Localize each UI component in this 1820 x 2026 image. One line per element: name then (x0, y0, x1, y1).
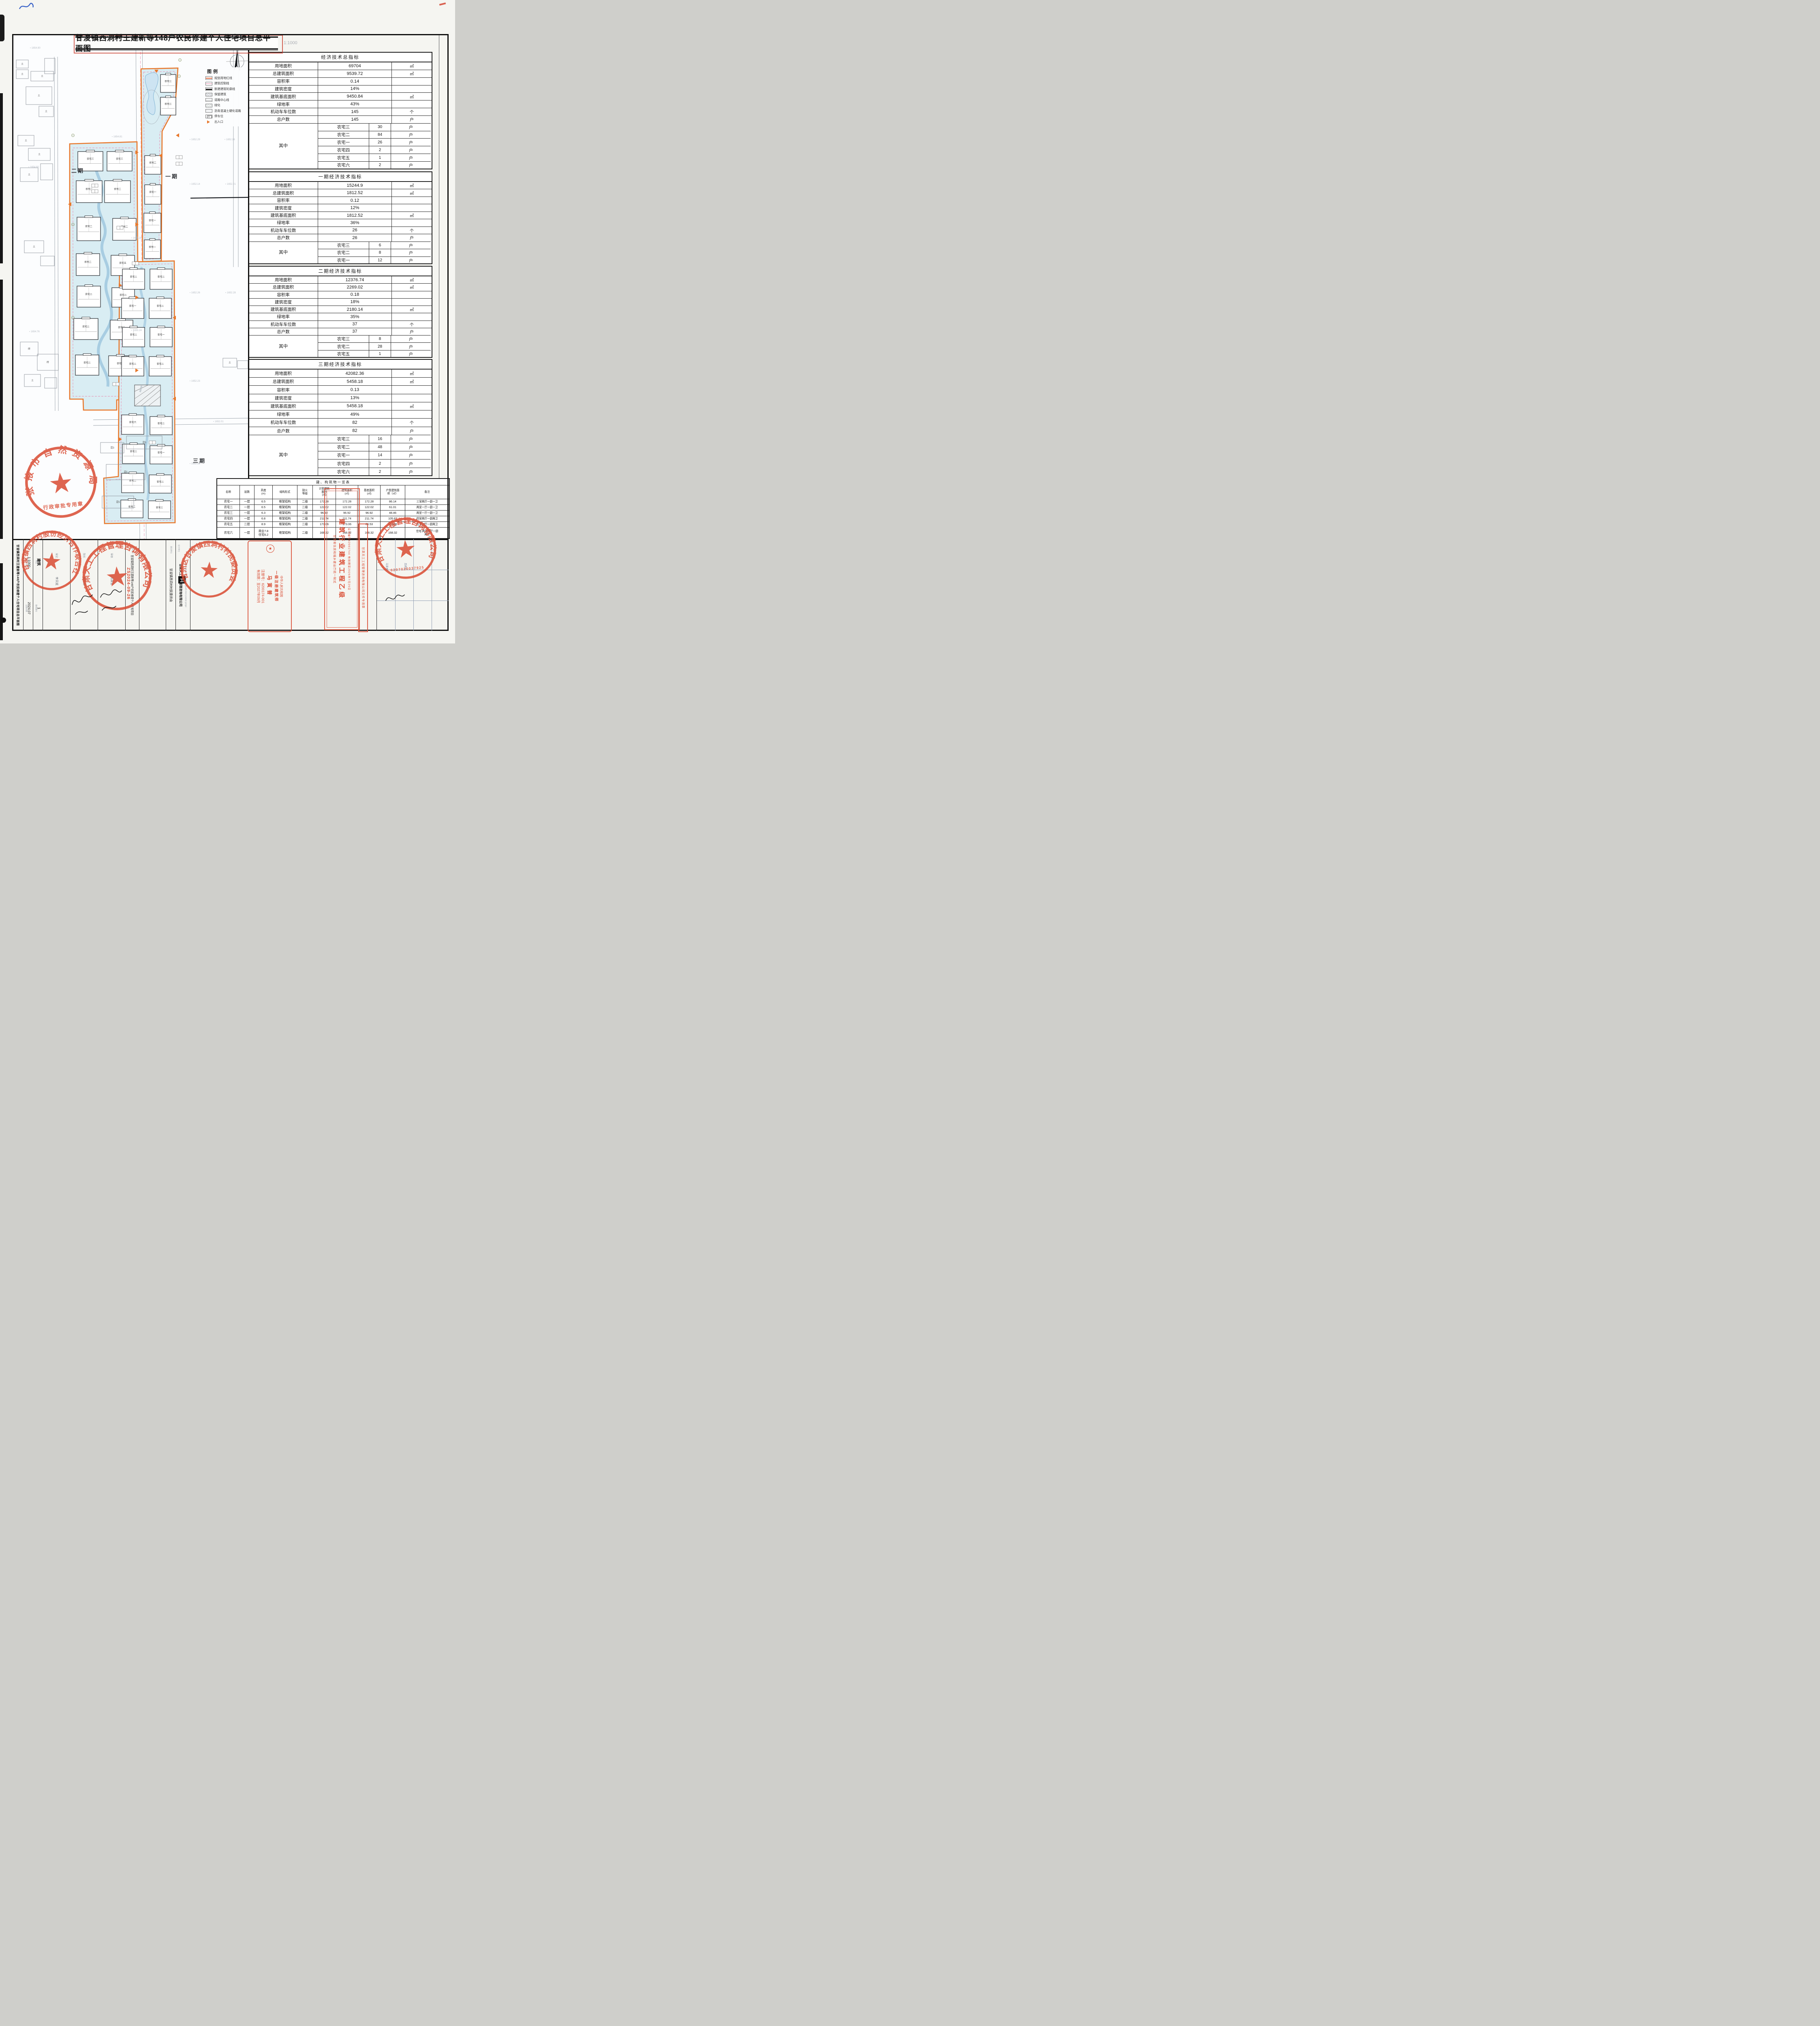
elevation-value: 1652.21 (227, 183, 236, 186)
table-cell: ㎡ (391, 402, 432, 410)
existing-building-label: 土 (21, 62, 24, 66)
table-cell: 农宅二 (318, 342, 369, 350)
existing-building-label: 土 (41, 75, 43, 78)
house-label: 农宅二 (130, 333, 137, 336)
house-label: 农宅二 (85, 293, 92, 296)
divider-vertical (248, 34, 249, 478)
table-cell: 172.28 (336, 499, 358, 504)
table-cell: 26 (369, 138, 391, 146)
table-header-cell: 层数 (240, 485, 254, 499)
table-row: 建筑基底面积9450.84㎡ (249, 92, 432, 100)
table-cell: 农宅三 (318, 123, 369, 131)
indicator-table: 经济技术总指标用地面积69704㎡总建筑面积9539.72㎡容积率0.14建筑密… (248, 52, 432, 169)
existing-building-label: 混5 (124, 470, 128, 474)
table-cell: 框架结构 (272, 510, 297, 516)
table-cell: 建筑密度 (249, 204, 318, 211)
house-label: 农宅一 (158, 451, 165, 454)
tb-role-2: 院长 (82, 553, 86, 558)
table-cell: 13% (318, 394, 391, 402)
house-block: 农宅一 (144, 212, 161, 233)
existing-building-label: 土 (38, 153, 41, 156)
table-row: 机动车车位数37个 (249, 321, 432, 328)
table-header-cell: 高度 (m) (254, 485, 272, 499)
elevation-value: 1654.81 (113, 136, 122, 138)
table-cell: 户 (391, 161, 431, 169)
table-row: 绿地率35% (249, 313, 432, 320)
elevation-value: 1652.16 (226, 139, 235, 141)
table-cell: 37 (318, 328, 391, 335)
tb-owner-cell: 建设单位 甘浚镇西洞村村民委员会 (166, 539, 176, 631)
table-cell: 户 (391, 249, 431, 256)
table-cell: 一层 (240, 499, 254, 504)
table-row: 容积率0.12 (249, 197, 432, 204)
tb-scale-value: 1:1000 (27, 557, 31, 567)
house-label: 农宅二 (157, 304, 164, 308)
table-cell: 框架结构 (272, 527, 297, 539)
table-cell: 6.3 (254, 510, 272, 516)
table-row: 总户数37户 (249, 328, 432, 335)
table-cell: 户 (391, 443, 431, 451)
dots-swatch (205, 109, 212, 113)
table-cell: 户 (391, 154, 431, 161)
house-label: 农宅六 (129, 421, 137, 424)
existing-building-label: 土 (25, 139, 27, 142)
pinkline-swatch (205, 82, 212, 85)
table-cell: 0.14 (318, 77, 391, 85)
elevation-value: 1652.29 (191, 139, 200, 141)
house-label: 农宅三 (165, 79, 172, 83)
table-cell: 26 (318, 227, 391, 234)
table-cell: 总户数 (249, 328, 318, 335)
elevation-value: 1654.76 (31, 331, 40, 333)
table-cell: 农宅一 (318, 256, 369, 264)
house-block: 农宅一 (144, 239, 160, 259)
scan-blob (0, 15, 4, 41)
legend-item-label: 规划用地红线 (214, 76, 232, 80)
house-label: 农宅二 (158, 275, 165, 278)
table-cell: 122.02 (358, 504, 380, 510)
table-cell (391, 100, 432, 108)
table-cell: 30 (369, 123, 391, 131)
table-cell: 机动车车位数 (249, 418, 318, 426)
table-cell: 户 (391, 123, 431, 131)
house-block: 农宅三 (107, 150, 132, 171)
scan-edge-bar (0, 563, 3, 640)
house-label: 农宅二 (130, 450, 137, 453)
table-cell: 个 (391, 418, 432, 426)
table-row: 农宅四一层6.8框架结构二级211.74211.74211.74105.87四室… (217, 516, 449, 521)
table-cell: 145 (318, 115, 391, 123)
table-cell: 框架结构 (272, 521, 297, 527)
parking-swatch (205, 115, 212, 118)
table-cell: 住宅:两室两厅一厨 两卫 (405, 527, 449, 539)
indicator-table-title: 二期经济技术指标 (249, 267, 432, 276)
table-cell: 6.5 (254, 499, 272, 504)
tb-sheetno-value: 1 (37, 607, 41, 609)
table-cell: 农宅四 (318, 146, 369, 154)
table-cell: 户 (391, 115, 432, 123)
legend-items: 规划用地红线建筑控制线新建建筑轮廓线保留建筑道路中心线绿化沥青混凝土硬化道路停车… (201, 75, 247, 125)
hatch-swatch (205, 93, 212, 96)
table-row: 容积率0.18 (249, 291, 432, 298)
house-block: 农宅二 (150, 268, 172, 290)
sig-table-line (377, 601, 449, 601)
house-block: 农宅三 (160, 73, 176, 93)
table-cell: 商业7.8 住宅6.2 (254, 527, 272, 539)
table-cell: 农宅六 (318, 161, 369, 169)
table-row: 总建筑面积9539.72㎡ (249, 70, 432, 77)
divider-vertical-thin (439, 34, 439, 478)
table-cell (391, 197, 432, 204)
designer-logo-char: 工 (180, 577, 184, 583)
table-row: 绿地率36% (249, 219, 432, 226)
table-cell: 二级 (297, 521, 312, 527)
house-block: 农宅二 (76, 252, 100, 276)
existing-building-label: 砖 (47, 361, 49, 364)
house-block: 农宅二 (122, 268, 145, 290)
thinline-swatch (205, 98, 212, 102)
table-cell: 户 (391, 241, 431, 249)
tb-designer-cell: 设计单位 甘肃天工工程管理咨询有限公司 Gansu tiangong gongc… (176, 539, 190, 631)
table-cell: 两室一厅一厨一卫 (405, 510, 449, 516)
house-label: 农宅二 (83, 361, 91, 364)
house-block: 农宅二 (149, 297, 171, 319)
table-cell: 1 (369, 154, 391, 161)
tb-date-value: 2024.07 (27, 602, 31, 614)
table-cell: 机动车车位数 (249, 321, 318, 328)
table-cell: 绿地率 (249, 100, 318, 108)
table-row: 建筑基底面积1812.52㎡ (249, 212, 432, 219)
table-cell: 6.8 (254, 516, 272, 521)
table-row: 农宅二一层6.5框架结构二级122.02122.02122.0261.01两室一… (217, 504, 449, 510)
table-cell: 绿地率 (249, 219, 318, 226)
indicator-table-title: 一期经济技术指标 (249, 172, 432, 182)
table-cell: 173.06 (312, 521, 336, 527)
table-cell: 容积率 (249, 77, 318, 85)
house-label: 农宅三 (87, 157, 94, 160)
tb-drawing-name-cell: 甘浚镇西洞村王建新等148户农民修建个人住宅项目总平面图 (12, 539, 24, 631)
table-cell: 二级 (297, 510, 312, 516)
table-cell: 173.06 (336, 521, 358, 527)
table-cell: 户 (391, 342, 431, 350)
table-cell: 43% (318, 100, 391, 108)
legend-item: 沥青混凝土硬化道路 (201, 108, 247, 114)
redline-swatch (205, 76, 212, 80)
elevation-value: 1652.01 (215, 421, 224, 423)
legend-item: 绿化 (201, 103, 247, 109)
house-label: 农宅二 (85, 224, 92, 228)
table-cell: 96.92 (358, 510, 380, 516)
table-cell: ㎡ (391, 189, 432, 196)
table-cell: 2269.02 (318, 283, 391, 291)
page-title: 甘浚镇西洞村王建新等148户农民修建个人住宅项目总平面图 (75, 32, 278, 53)
house-block: 农宅二 (105, 180, 130, 203)
table-cell (391, 77, 432, 85)
house-block: 农宅二 (149, 355, 171, 376)
indicator-table-title: 三期经济技术指标 (249, 360, 432, 369)
table-cell: 16 (369, 435, 391, 443)
hatch2-swatch (205, 104, 212, 107)
house-label: 农宅二 (82, 325, 90, 328)
table-cell: 168.32 (312, 527, 336, 539)
table-cell: 2 (369, 161, 391, 169)
table-cell: 建筑密度 (249, 85, 318, 93)
house-label: 农宅二 (120, 293, 127, 297)
existing-building-label: 土 (38, 94, 40, 97)
table-cell: 173.06 (380, 521, 405, 527)
house-label: 农宅三 (165, 102, 172, 105)
table-cell: 农宅五 (318, 350, 369, 357)
table-cell: 14% (318, 85, 391, 93)
tb-sig-table: 马寅普 吴耕耘 (377, 539, 449, 631)
house-label: 农宅一 (149, 219, 156, 222)
house-label: 农宅五 (119, 261, 126, 265)
table-row: 农宅六一层商业7.8 住宅6.2框架结构二级168.32168.32168.32… (217, 527, 449, 539)
table-row: 建筑基底面积5458.18㎡ (249, 402, 432, 410)
table-row: 机动车车位数145个 (249, 108, 432, 115)
elevation-value: 1652.14 (191, 183, 200, 186)
table-cell: 6 (369, 241, 391, 249)
table-cell (391, 219, 432, 226)
table-cell: 61.01 (380, 504, 405, 510)
table-cell: 个 (391, 108, 432, 115)
tb-name-2: 韩多创 (82, 577, 86, 586)
table-cell: 36% (318, 219, 391, 226)
house-label: 农宅一 (129, 304, 137, 308)
building-table-title: 建、构筑物一览表 (217, 479, 449, 485)
house-block: 农宅二 (77, 216, 101, 241)
existing-building-label: 土 (33, 245, 35, 248)
table-cell: 96.92 (312, 510, 336, 516)
table-cell: ㎡ (391, 283, 432, 291)
legend-item: 新建建筑轮廓线 (201, 86, 247, 92)
table-cell: 总建筑面积 (249, 283, 318, 291)
table-header-cell: 建筑面积 (㎡) (336, 485, 358, 499)
table-cell: 一层 (240, 510, 254, 516)
table-row: 建筑密度14% (249, 85, 432, 93)
among-label: 其中 (249, 123, 318, 169)
table-cell: 户 (391, 459, 431, 467)
table-cell: 农宅六 (217, 527, 240, 539)
existing-building-label: 土 (31, 379, 34, 382)
house-block: 农宅二 (74, 317, 98, 340)
existing-building-label: 混5 (116, 500, 120, 504)
table-row: 容积率0.13 (249, 385, 432, 393)
table-row: 总建筑面积1812.52㎡ (249, 189, 432, 196)
table-cell: 5458.18 (318, 402, 391, 410)
table-cell: 户 (391, 335, 431, 342)
table-cell: 个 (391, 321, 432, 328)
table-cell: 农宅一 (318, 138, 369, 146)
tb-sign-col-2: 院长 韩多创 (71, 539, 98, 631)
legend-item: 规划用地红线 (201, 75, 247, 81)
table-cell: 农宅一 (318, 451, 369, 459)
table-cell: 84 (369, 131, 391, 139)
house-label: 农宅二 (130, 275, 137, 278)
legend-item-label: 沥青混凝土硬化道路 (214, 109, 241, 113)
table-cell: 户 (391, 350, 431, 357)
table-cell: 容积率 (249, 291, 318, 298)
table-row: 容积率0.14 (249, 77, 432, 85)
table-cell: 建筑基底面积 (249, 212, 318, 219)
table-cell: 农宅五 (318, 154, 369, 161)
house-label: 农宅二 (129, 362, 137, 365)
table-header-cell: 结构形式 (272, 485, 297, 499)
table-cell: 农宅一 (217, 499, 240, 504)
table-cell: 农宅二 (318, 249, 369, 256)
table-cell: 15244.9 (318, 182, 391, 189)
elevation-value: 1652.28 (227, 292, 236, 294)
house-block: 农宅二 (122, 443, 145, 464)
table-cell: 6.5 (254, 504, 272, 510)
tb-project-label: 项目名称 (131, 546, 134, 554)
table-cell: 2 (369, 146, 391, 154)
legend-item: 保留建筑 (201, 92, 247, 98)
table-cell: 168.32 (380, 527, 405, 539)
among-label: 其中 (249, 434, 318, 475)
table-row: 农宅五二层8.9框架结构二级173.06173.0686.53173.06五室三… (217, 521, 449, 527)
house-label: 农宅一 (149, 190, 156, 194)
table-cell: 个 (391, 227, 432, 234)
table-cell: 二级 (297, 516, 312, 521)
tb-sign-col-1: 审定 李天斌 (43, 539, 71, 631)
table-cell: 建筑基底面积 (249, 92, 318, 100)
among-label: 其中 (249, 241, 318, 263)
house-block: 农宅一 (145, 184, 161, 205)
table-cell: 172.28 (312, 499, 336, 504)
phase2-label: 二期 (71, 168, 84, 174)
house-label: 农宅二 (128, 505, 136, 508)
legend-item-label: 出入口 (214, 120, 223, 124)
tb-designer-label: 设计单位 (178, 544, 180, 551)
table-cell: 用地面积 (249, 369, 318, 377)
tb-date-cell: 出图日期 2024.07 (24, 585, 33, 631)
house-block: 农宅二 (76, 180, 102, 203)
table-cell: 49% (318, 410, 391, 418)
existing-building-label: 土 (21, 73, 24, 76)
tb-designer-pinyin: Gansu tiangong gongcheng guanli zixun yo… (185, 563, 187, 607)
table-cell: 12376.74 (318, 276, 391, 283)
house-block: 农宅一 (122, 297, 144, 319)
tb-extra-name-2: 吴耕耘 (404, 563, 407, 570)
legend-item: 道路中心线 (201, 97, 247, 103)
pen-mark-red (439, 2, 446, 6)
house-block: 农宅三 (148, 500, 171, 519)
table-cell: 农宅三 (318, 241, 369, 249)
table-header-cell: 基底面积 (㎡) (358, 485, 380, 499)
table-cell: 8.9 (254, 521, 272, 527)
table-cell: 一层 (240, 527, 254, 539)
table-cell: 建筑基底面积 (249, 306, 318, 313)
table-cell: 总建筑面积 (249, 377, 318, 385)
tb-name-1: 李天斌 (55, 577, 59, 586)
table-cell: 户 (391, 435, 431, 443)
existing-building-label: 土 (229, 361, 231, 364)
table-row: 用地面积12376.74㎡ (249, 276, 432, 283)
house-block: 农宅一 (150, 326, 172, 347)
table-cell: 四室两厅一厨两卫 (405, 516, 449, 521)
table-cell: ㎡ (391, 62, 432, 70)
legend-item-label: 绿化 (214, 103, 220, 107)
table-cell: 农宅三 (217, 510, 240, 516)
tb-sign-col-3: 审核 马寅普 (98, 539, 126, 631)
table-cell: 户 (391, 234, 432, 241)
tb-name-3: 马寅普 (110, 577, 114, 586)
tb-owner-label: 建设单位 (170, 546, 172, 554)
table-row: 总户数26户 (249, 234, 432, 241)
table-cell: 1812.52 (318, 212, 391, 219)
sig-table-line (432, 539, 432, 631)
table-row: 建筑密度13% (249, 394, 432, 402)
table-cell (391, 298, 432, 306)
table-row: 绿地率49% (249, 410, 432, 418)
tb-drawing-name: 甘浚镇西洞村王建新等148户农民修建个人住宅项目总平面图 (16, 544, 20, 626)
table-cell: 户 (391, 138, 431, 146)
building-table: 建、构筑物一览表名称层数高度 (m)结构形式耐火 等级计容建筑 面积 (㎡)建筑… (216, 478, 450, 539)
legend-title: 图例 (207, 68, 247, 75)
table-cell (391, 385, 432, 393)
table-cell: 2 (369, 468, 391, 476)
table-cell: 1 (369, 350, 391, 357)
legend-item-label: 新建建筑轮廓线 (214, 87, 235, 91)
tb-extra-name-1: 马寅普 (385, 563, 389, 570)
table-cell: 122.02 (336, 504, 358, 510)
scan-blob (1, 618, 6, 623)
table-cell: 145 (318, 108, 391, 115)
table-cell: 建筑密度 (249, 394, 318, 402)
tb-role-1: 审定 (55, 553, 58, 558)
table-cell: 总建筑面积 (249, 70, 318, 77)
legend-item: 出入口 (201, 119, 247, 125)
house-block: 农宅二 (145, 154, 161, 175)
house-block: 农宅一 (150, 445, 172, 464)
table-cell: 两室一厅一厨一卫 (405, 504, 449, 510)
title-scale: 1:1000 (284, 41, 297, 45)
table-cell: 122.02 (312, 504, 336, 510)
indicator-table: 二期经济技术指标用地面积12376.74㎡总建筑面积2269.02㎡容积率0.1… (248, 266, 432, 358)
phase3-label: 三期 (193, 458, 206, 464)
table-cell: 69704 (318, 62, 391, 70)
house-block: 农宅二 (75, 354, 99, 376)
table-cell: 容积率 (249, 385, 318, 393)
table-row: 农宅三一层6.3框架结构二级96.9296.9296.9248.46两室一厅一厨… (217, 510, 449, 516)
table-row: 建筑密度18% (249, 298, 432, 306)
house-label: 农宅二 (129, 479, 137, 482)
existing-building-label: 土 (28, 173, 30, 176)
house-label: 农宅二 (149, 161, 156, 164)
table-cell (391, 313, 432, 320)
legend-item: 建筑控制线 (201, 81, 247, 87)
table-cell: 二层 (240, 521, 254, 527)
table-cell: 5458.18 (318, 377, 391, 385)
table-cell: 0.13 (318, 385, 391, 393)
existing-building-label: 土 (45, 110, 47, 113)
elevation-value: 1654.90 (32, 47, 41, 49)
table-cell: 28 (369, 342, 391, 350)
indicator-table: 三期经济技术指标用地面积42082.36㎡总建筑面积5458.18㎡容积率0.1… (248, 359, 432, 476)
tb-discipline-cell: 专业 建筑 (33, 539, 43, 585)
pen-mark-blue (18, 1, 36, 12)
legend-item-label: 建筑控制线 (214, 81, 229, 85)
table-cell: 二级 (297, 504, 312, 510)
table-cell: 建筑密度 (249, 298, 318, 306)
table-row: 用地面积15244.9㎡ (249, 182, 432, 189)
table-cell: 用地面积 (249, 62, 318, 70)
table-cell: 户 (391, 451, 431, 459)
table-cell: 三室两厅一厨一卫 (405, 499, 449, 504)
table-cell: 105.87 (380, 516, 405, 521)
table-cell: 绿地率 (249, 313, 318, 320)
